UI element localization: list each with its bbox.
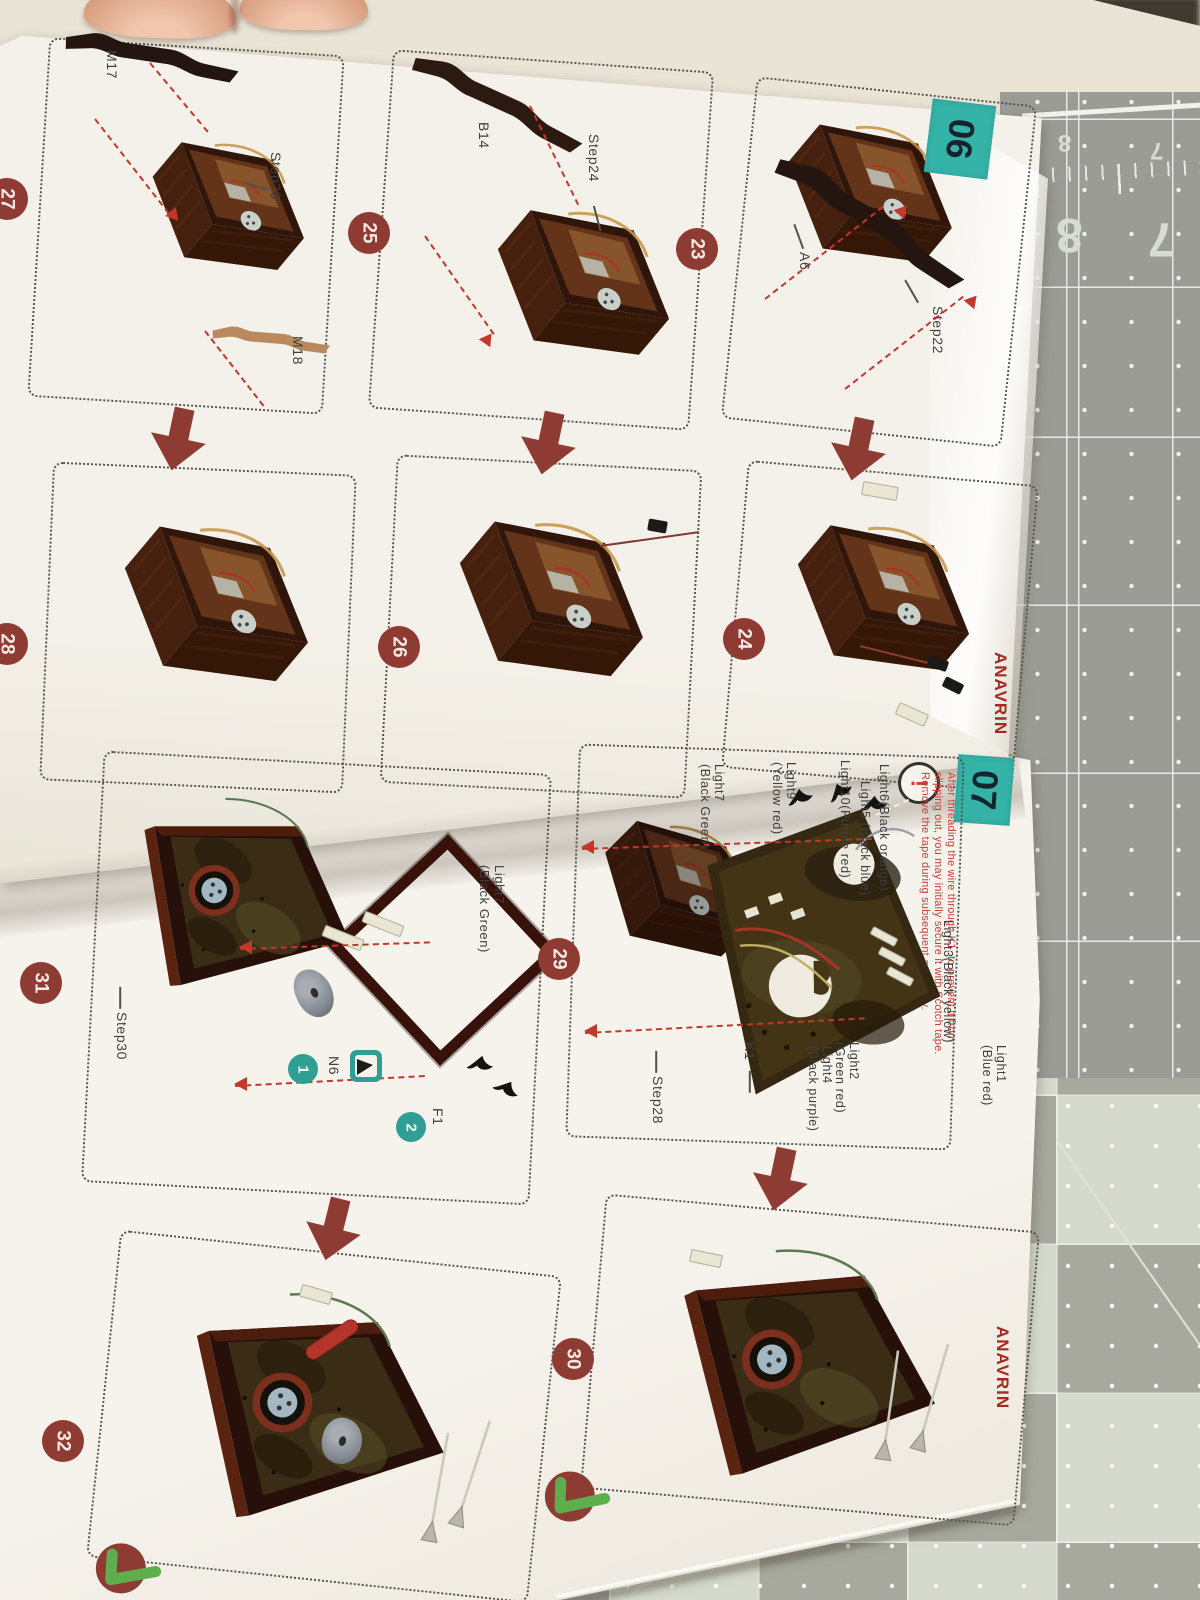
cutting-mat-edge	[1022, 102, 1200, 118]
label-light1: Light1(Blue red)	[980, 1045, 1008, 1106]
mat-diagonal-line	[1056, 1141, 1200, 1347]
label-step24: Step24	[586, 134, 602, 182]
mat-number-8-large: 8	[1056, 210, 1083, 258]
label-n6: N6	[326, 1056, 342, 1075]
label-light4: Light4(Black purple)	[806, 1046, 834, 1132]
step-number-30: 30	[552, 1338, 594, 1380]
label-k1: K1	[742, 1042, 758, 1060]
section-badge-06: 06	[924, 98, 997, 179]
label-light9: Light9(Yellow red)	[770, 762, 798, 835]
label-light6: Light6(Black orange)	[877, 764, 891, 891]
brand-logo: ANAVRIN	[990, 652, 1010, 735]
dashed-arrowhead	[232, 940, 252, 954]
label-light10: Light10(Purple red)	[838, 760, 852, 878]
photo-scene: 8 7 8 7 M17 Step26 M18 B1	[0, 0, 1200, 1600]
step-number-29: 29	[538, 938, 580, 980]
step-number-24: 24	[723, 618, 765, 660]
adhesive-tape-icon	[350, 1050, 382, 1082]
callout-1-badge: 1	[288, 1054, 318, 1084]
checkmark-icon	[536, 1463, 611, 1534]
mat-number-7-small: 7	[1150, 138, 1163, 162]
label-b14: B14	[476, 122, 492, 149]
callout-2-badge: 2	[396, 1112, 426, 1142]
mat-number-8-small: 8	[1058, 130, 1071, 154]
label-light3: Light3(Black yellow)	[941, 920, 955, 1043]
step-complete-checkmark	[541, 1464, 606, 1529]
label-light7-panel31: Light7(Black Green)	[477, 865, 507, 953]
finger-seam-shadow	[230, 0, 240, 34]
step-number-25: 25	[348, 212, 390, 254]
table-corner-shadow	[1060, 0, 1200, 30]
label-m18: M18	[290, 336, 306, 365]
label-step30: Step30	[114, 1012, 130, 1060]
step-number-31: 31	[20, 962, 62, 1004]
label-light5: Light5 (Black blue)	[858, 781, 872, 896]
dashed-arrowhead	[577, 1024, 597, 1038]
label-f1: F1	[430, 1108, 446, 1126]
step-number-26: 26	[378, 626, 420, 668]
finger	[240, 0, 369, 31]
part-k1-back-board	[639, 776, 970, 1128]
label-step28: Step28	[650, 1076, 666, 1124]
step-number-32: 32	[42, 1420, 84, 1462]
label-light7: Light7(Black Green)	[698, 764, 726, 849]
label-a6: A6	[797, 252, 813, 270]
label-step22: Step22	[930, 306, 946, 354]
step-complete-checkmark	[91, 1535, 157, 1600]
dashed-arrowhead	[574, 840, 594, 854]
cutting-mat-ruler	[1035, 160, 1200, 203]
label-step26: Step26	[268, 152, 284, 200]
mat-number-7-large: 7	[1148, 214, 1175, 262]
label-connector	[655, 1051, 657, 1073]
step-number-23: 23	[676, 228, 718, 270]
label-connector	[119, 987, 121, 1009]
label-light2: Light2(Green red)	[833, 1042, 861, 1113]
dashed-arrowhead	[227, 1077, 247, 1091]
label-connector	[749, 1071, 751, 1093]
brand-logo: ANAVRIN	[992, 1326, 1012, 1409]
label-m17: M17	[104, 50, 120, 79]
